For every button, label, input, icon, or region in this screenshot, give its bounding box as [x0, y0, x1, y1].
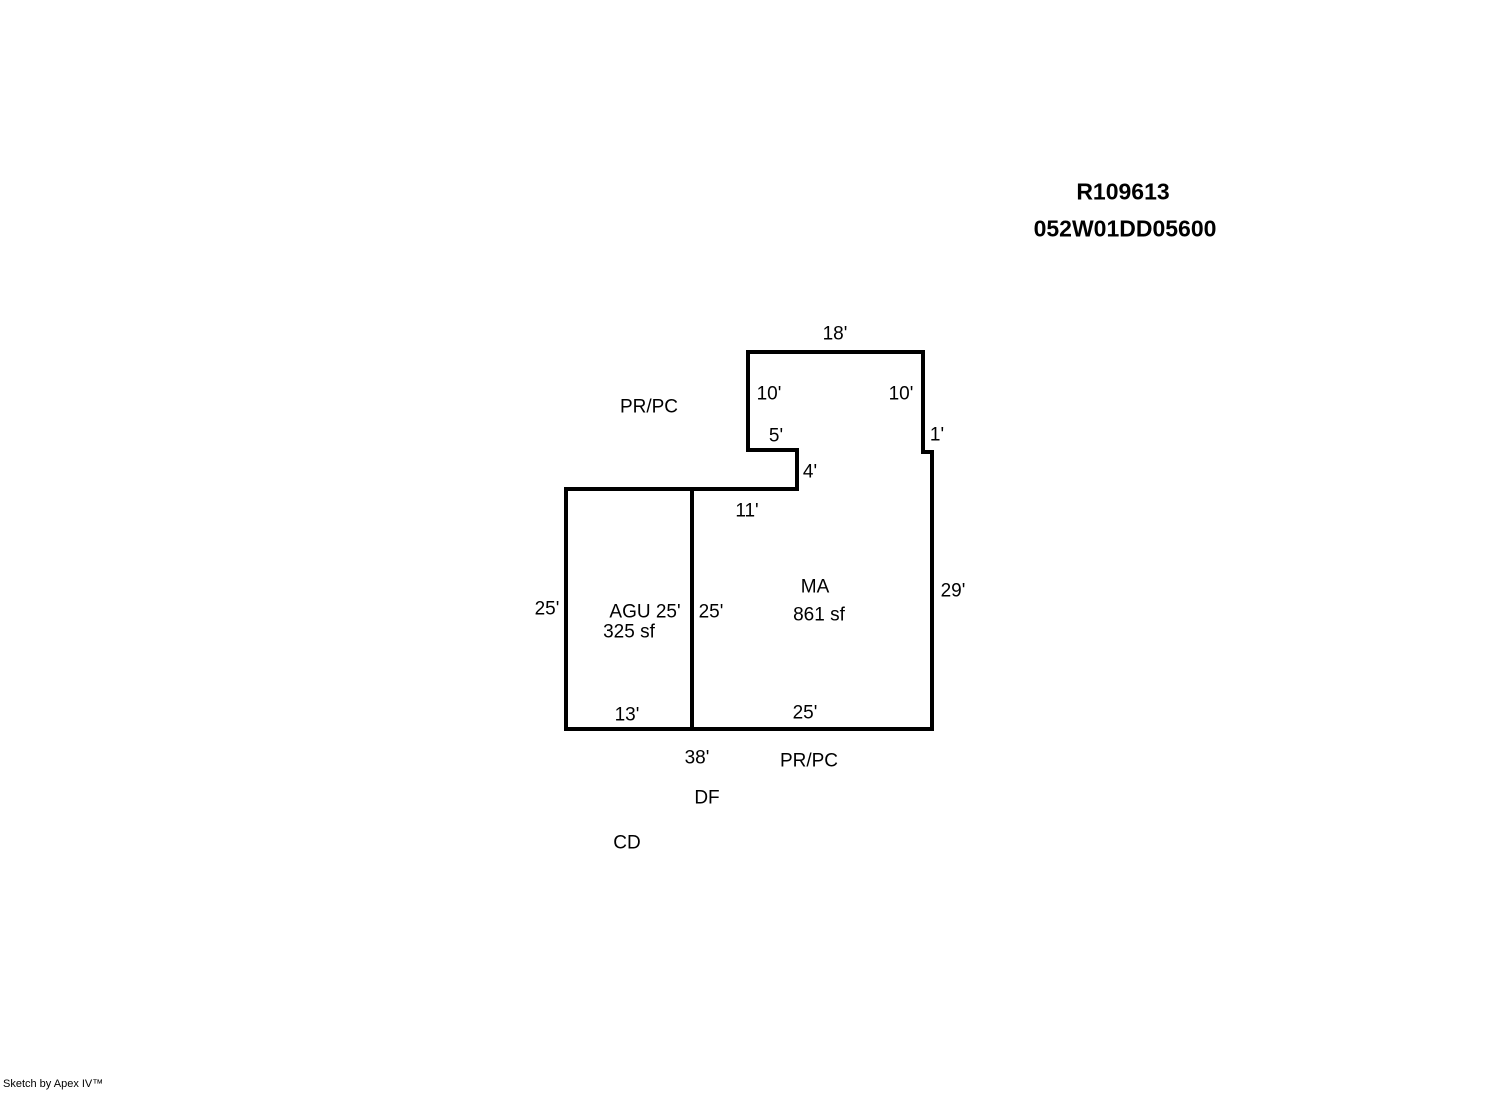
label-cd: CD	[613, 833, 640, 854]
dim-left-25ft: 25'	[535, 599, 560, 620]
dim-bottom-13ft: 13'	[615, 705, 640, 726]
label-pr-pc-upper: PR/PC	[620, 397, 678, 418]
dim-right-29ft: 29'	[941, 581, 966, 602]
label-df: DF	[694, 788, 719, 809]
dim-11ft: 11'	[735, 501, 758, 522]
label-pr-pc-lower: PR/PC	[780, 751, 838, 772]
dim-bottom-25ft: 25'	[793, 703, 818, 724]
label-agu-25ft: AGU 25'	[609, 602, 680, 623]
building-sketch: 18'PR/PC10'10'5'1'4'11'25'AGU 25'325 sf2…	[0, 0, 1492, 1094]
dim-divider-25ft: 25'	[699, 602, 724, 623]
dim-notch-4ft: 4'	[803, 462, 817, 483]
dim-right-10ft: 10'	[889, 384, 914, 405]
sketch-page: R109613 052W01DD05600 18'PR/PC10'10'5'1'…	[0, 0, 1492, 1094]
dim-bottom-38ft: 38'	[685, 748, 710, 769]
label-ma-area: 861 sf	[793, 605, 845, 626]
label-agu-area: 325 sf	[603, 622, 655, 643]
label-ma: MA	[801, 577, 830, 598]
dim-left-10ft: 10'	[757, 384, 782, 405]
apex-watermark: Sketch by Apex IV™	[3, 1078, 103, 1090]
dim-top-18ft: 18'	[823, 324, 848, 345]
dim-notch-5ft: 5'	[769, 426, 783, 447]
dim-jog-1ft: 1'	[930, 425, 944, 446]
